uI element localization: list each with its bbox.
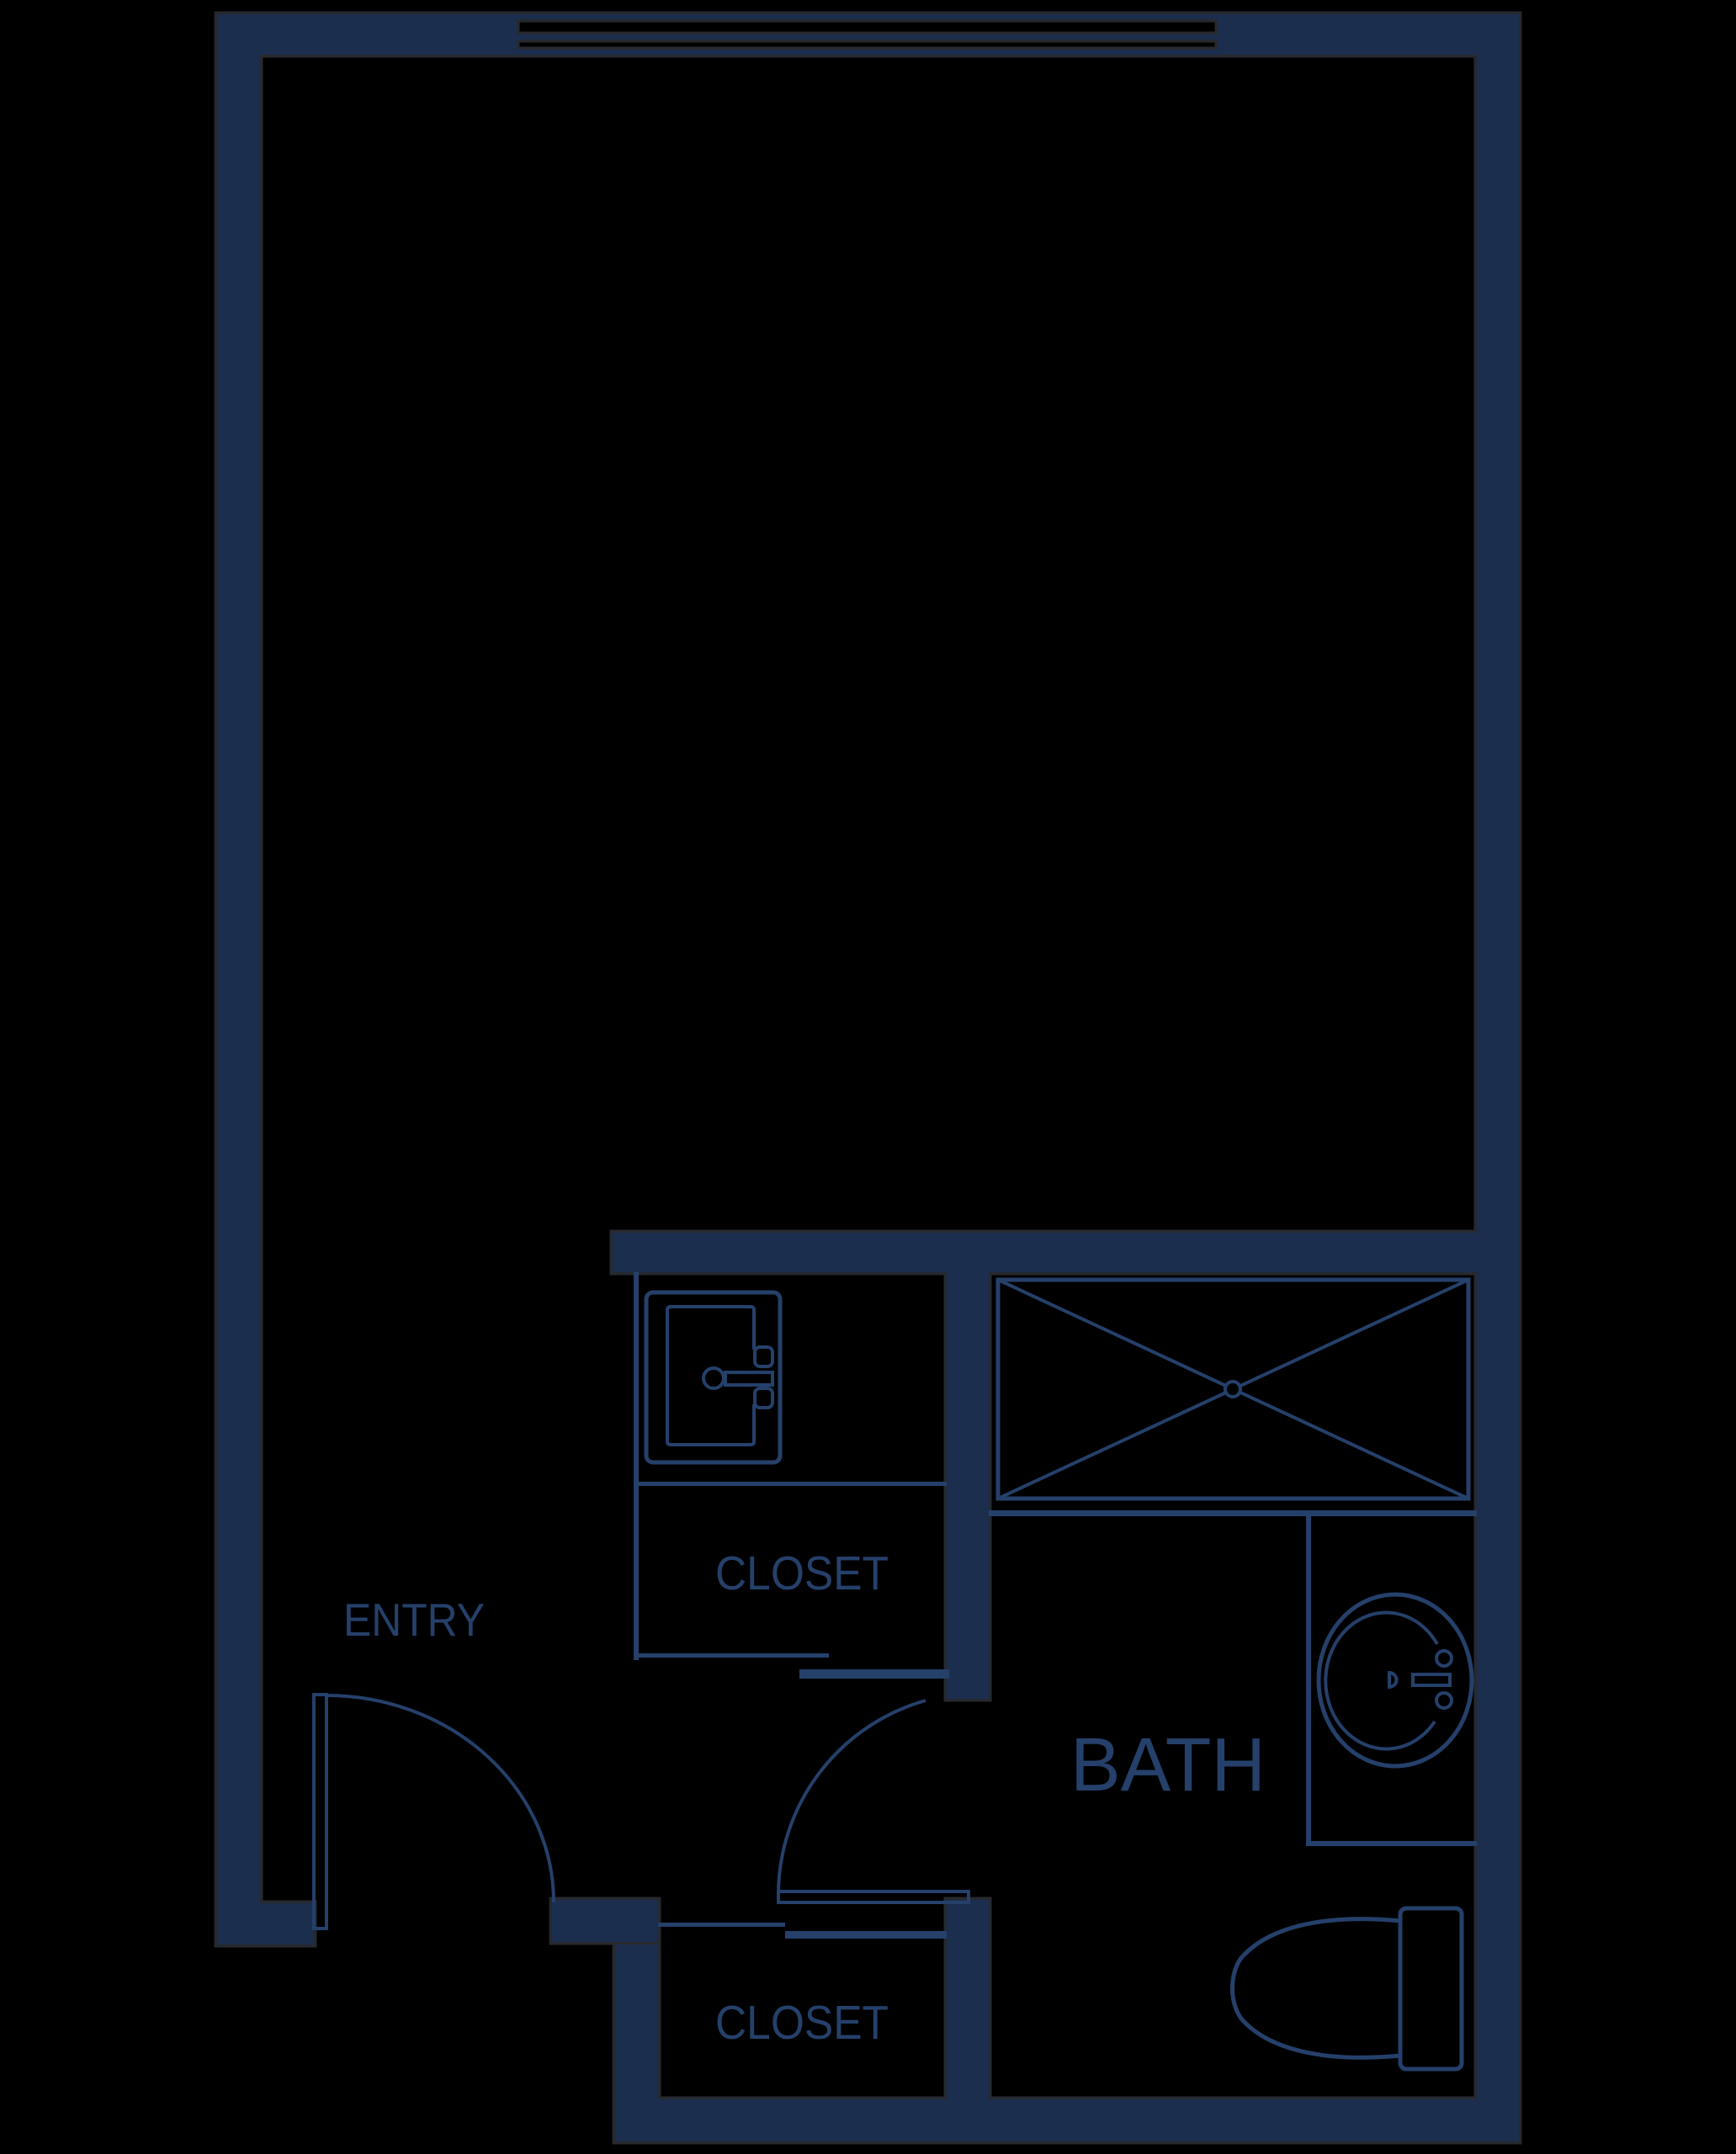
svg-text:CLOSET: CLOSET bbox=[715, 1547, 889, 1600]
svg-text:BATH: BATH bbox=[1070, 1723, 1266, 1807]
svg-text:ENTRY: ENTRY bbox=[343, 1594, 485, 1646]
svg-text:CLOSET: CLOSET bbox=[715, 1996, 889, 2050]
